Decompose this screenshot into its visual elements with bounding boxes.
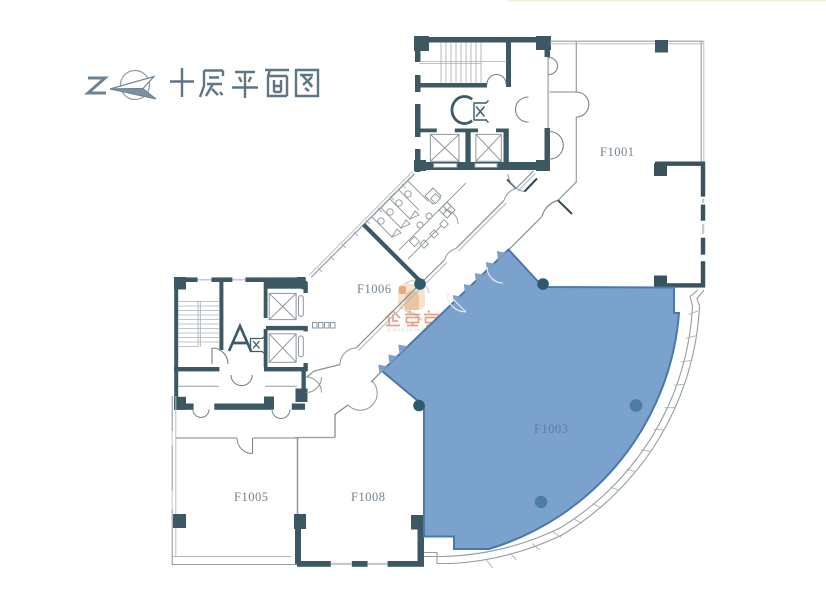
svg-text:F1006: F1006 <box>357 282 391 296</box>
svg-text:F1008: F1008 <box>351 490 385 504</box>
svg-text:F1005: F1005 <box>234 490 268 504</box>
svg-text:F1003: F1003 <box>534 422 568 436</box>
svg-text:QIFANGFANG: QIFANGFANG <box>387 328 426 333</box>
svg-text:F1001: F1001 <box>600 145 634 159</box>
